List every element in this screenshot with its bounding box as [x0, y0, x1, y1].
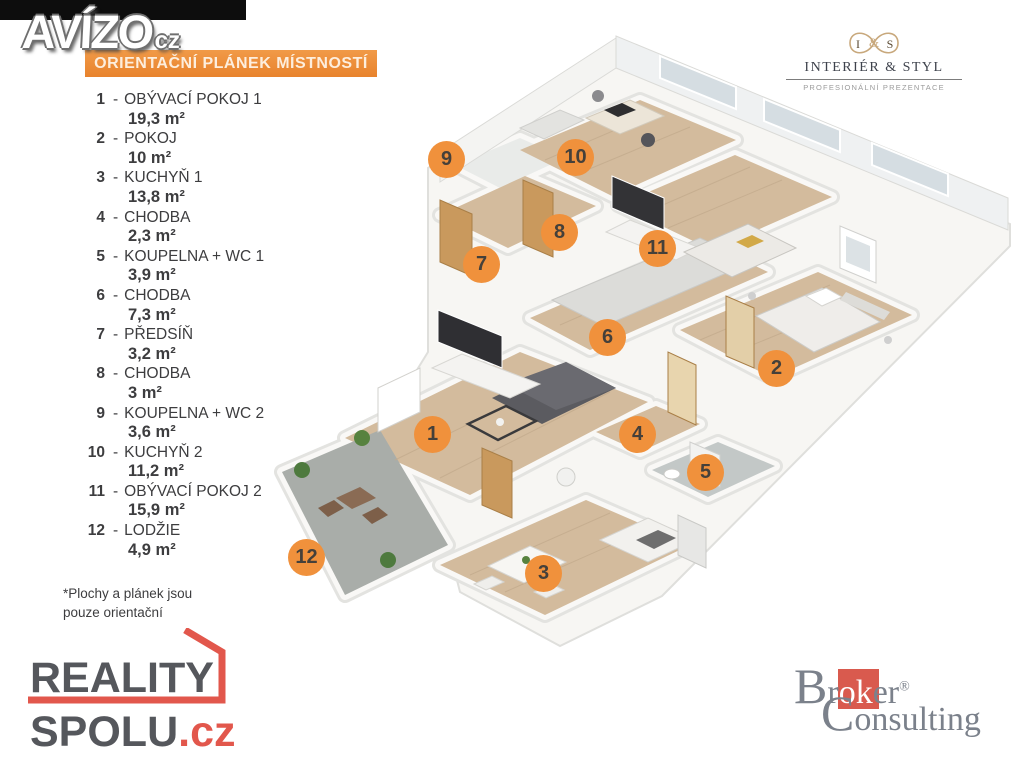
- room-badge-11: 11: [639, 230, 676, 267]
- room-badge-7: 7: [463, 246, 500, 283]
- interier-styl-subtitle: PROFESIONÁLNÍ PREZENTACE: [786, 83, 962, 92]
- spolu-text: SPOLU.cz: [30, 708, 236, 757]
- svg-text:&: &: [869, 35, 879, 50]
- broker-line2: Consulting: [821, 689, 981, 744]
- infinity-monogram-icon: I & S: [829, 26, 919, 60]
- reality-spolu-logo: REALITY SPOLU.cz: [28, 628, 278, 763]
- disclaimer-line1: *Plochy a plánek jsou: [63, 584, 192, 603]
- avizo-brand: AVÍZO: [21, 5, 154, 58]
- svg-text:I: I: [856, 37, 860, 51]
- room-badge-8: 8: [541, 214, 578, 251]
- legend-item: 4-CHODBA 2,3 m²: [60, 208, 295, 247]
- disclaimer-footnote: *Plochy a plánek jsou pouze orientační: [63, 584, 192, 622]
- room-badge-5: 5: [687, 454, 724, 491]
- legend-item: 8-CHODBA 3 m²: [60, 364, 295, 403]
- legend-item: 6-CHODBA 7,3 m²: [60, 286, 295, 325]
- room-badge-6: 6: [589, 319, 626, 356]
- legend-item: 12-LODŽIE 4,9 m²: [60, 521, 295, 560]
- avizo-watermark: AVÍZOcz: [0, 0, 300, 80]
- spolu-tld: .cz: [178, 708, 235, 756]
- interier-styl-logo: I & S INTERIÉR & STYL PROFESIONÁLNÍ PREZ…: [786, 26, 962, 92]
- svg-text:S: S: [887, 37, 894, 51]
- legend-item: 3-KUCHYŇ 1 13,8 m²: [60, 168, 295, 207]
- room-badge-2: 2: [758, 350, 795, 387]
- broker-consulting-logo: Broker® Consulting: [794, 662, 1024, 757]
- reality-text: REALITY: [30, 654, 214, 703]
- legend-item: 11-OBÝVACÍ POKOJ 2 15,9 m²: [60, 482, 295, 521]
- room-badge-9: 9: [428, 141, 465, 178]
- legend-item: 10-KUCHYŇ 2 11,2 m²: [60, 443, 295, 482]
- room-badge-1: 1: [414, 416, 451, 453]
- avizo-tld: cz: [154, 27, 181, 54]
- room-badge-3: 3: [525, 555, 562, 592]
- legend-item: 7-PŘEDSÍŇ 3,2 m²: [60, 325, 295, 364]
- legend-item: 2-POKOJ 10 m²: [60, 129, 295, 168]
- avizo-logo-text: AVÍZOcz: [21, 4, 182, 59]
- room-badge-12: 12: [288, 539, 325, 576]
- room-badge-10: 10: [557, 139, 594, 176]
- legend-item: 9-KOUPELNA + WC 2 3,6 m²: [60, 404, 295, 443]
- interier-styl-title: INTERIÉR & STYL: [786, 60, 962, 80]
- legend-item: 5-KOUPELNA + WC 1 3,9 m²: [60, 247, 295, 286]
- legend-item: 1-OBÝVACÍ POKOJ 1 19,3 m²: [60, 90, 295, 129]
- room-badge-4: 4: [619, 416, 656, 453]
- disclaimer-line2: pouze orientační: [63, 603, 192, 622]
- room-legend: 1-OBÝVACÍ POKOJ 1 19,3 m² 2-POKOJ 10 m² …: [60, 90, 295, 560]
